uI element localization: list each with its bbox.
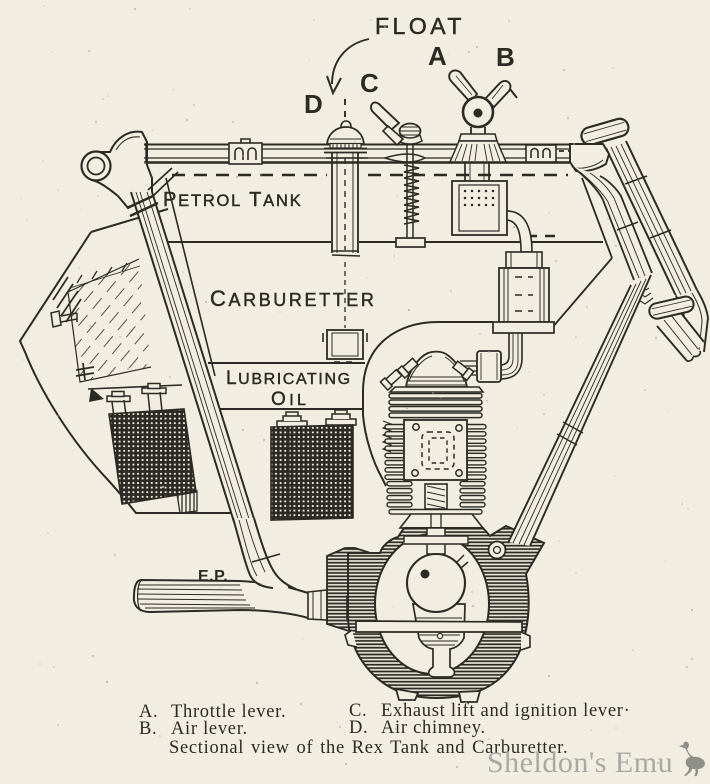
svg-text:A: A: [428, 41, 447, 71]
svg-text:Sheldon's Emu: Sheldon's Emu: [487, 746, 673, 779]
svg-text:B: B: [496, 42, 515, 72]
svg-text:PETROL TANK: PETROL TANK: [163, 189, 303, 211]
svg-text:C: C: [360, 68, 379, 98]
svg-text:FLOAT: FLOAT: [375, 13, 465, 39]
svg-text:LUBRICATING: LUBRICATING: [226, 368, 352, 389]
svg-text:Air chimney.: Air chimney.: [381, 718, 486, 738]
svg-text:B.: B.: [139, 719, 157, 739]
svg-text:Air lever.: Air lever.: [171, 719, 248, 739]
svg-text:OIL: OIL: [271, 389, 309, 410]
svg-text:CARBURETTER: CARBURETTER: [210, 286, 377, 311]
svg-text:D: D: [304, 89, 323, 119]
svg-text:E.P.: E.P.: [198, 568, 228, 585]
svg-text:D.: D.: [349, 718, 368, 738]
